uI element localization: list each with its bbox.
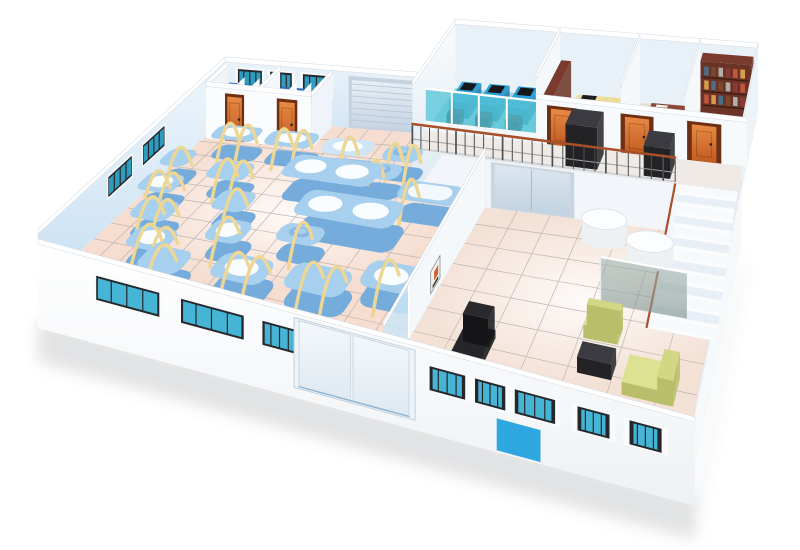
book <box>726 68 731 77</box>
book <box>733 97 738 106</box>
sofa-back-front <box>657 377 673 407</box>
scene-canvas <box>0 0 800 550</box>
corridor-cabinet-1-front <box>644 146 670 179</box>
book <box>740 97 745 106</box>
book <box>704 66 709 75</box>
book <box>719 82 724 91</box>
book <box>733 69 738 78</box>
rollup-door <box>352 80 420 131</box>
book <box>711 81 716 90</box>
book <box>726 82 731 91</box>
book <box>719 96 724 105</box>
book <box>726 96 731 105</box>
recliner-chair-back-front <box>463 313 489 347</box>
book <box>740 69 745 78</box>
book <box>740 83 745 92</box>
book <box>704 80 709 89</box>
machine-oval <box>308 196 342 212</box>
book <box>719 68 724 77</box>
stall-door-1-knob <box>290 124 293 127</box>
book <box>711 95 716 104</box>
book <box>704 94 709 103</box>
office-door-1-knob <box>643 136 646 139</box>
corridor-cabinet-1-top <box>644 130 675 149</box>
book <box>711 67 716 76</box>
facility-3d-render <box>0 0 800 550</box>
machine-oval <box>353 203 389 220</box>
office-door-2-panel <box>692 124 717 163</box>
office-door-2-knob <box>710 143 713 146</box>
book <box>733 83 738 92</box>
stall-door-0-knob <box>238 118 241 121</box>
